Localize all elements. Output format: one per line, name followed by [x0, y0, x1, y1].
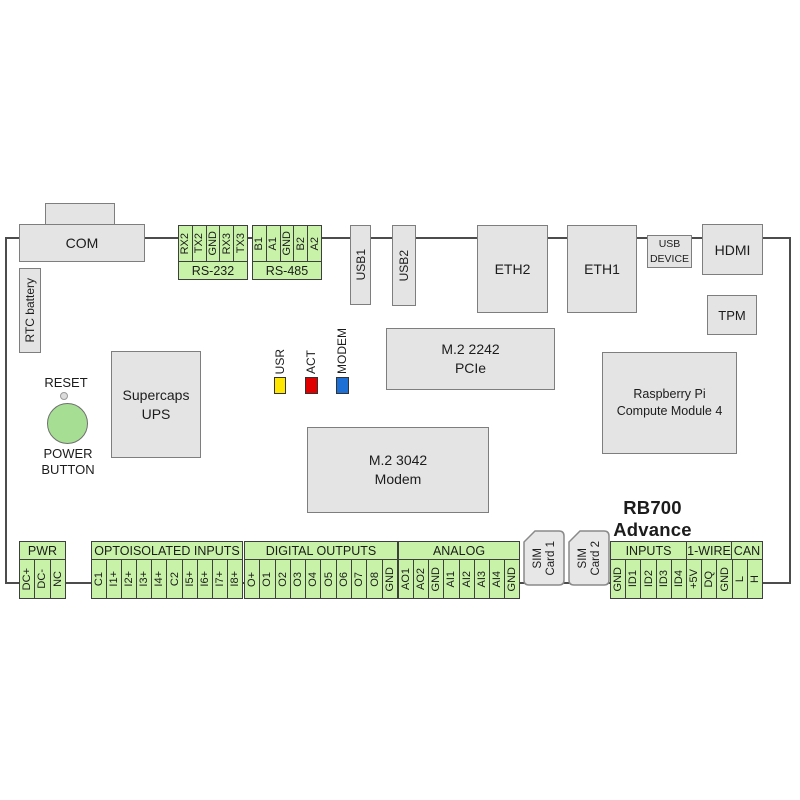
- optoisolated-inputs-pins: C1 I1+ I2+ I3+ I4+ C2 I5+ I6+ I7+ I8+: [91, 559, 243, 599]
- rs485-pins: B1 A1 GND B2 A2: [252, 225, 322, 262]
- usb2-port: USB2: [392, 225, 416, 306]
- sim-card-2: SIM Card 2: [568, 530, 610, 586]
- pin-id2: ID2: [640, 559, 656, 599]
- pin-o3: O3: [290, 559, 306, 599]
- pin-gnd: GND: [280, 225, 295, 262]
- rs485-header: RS-485: [252, 261, 322, 280]
- pin-c1: C1: [91, 559, 107, 599]
- pin-i6: I6+: [197, 559, 213, 599]
- onewire-header: 1-WIRE: [686, 541, 732, 560]
- can-header: CAN: [731, 541, 763, 560]
- pin-can-h: H: [747, 559, 763, 599]
- led-act-label: ACT: [304, 350, 318, 374]
- pin-5v: +5V: [686, 559, 702, 599]
- supercaps-ups: Supercaps UPS: [111, 351, 201, 458]
- pin-b1: B1: [252, 225, 267, 262]
- hdmi-label: HDMI: [715, 242, 751, 258]
- power-button: [47, 403, 88, 444]
- pin-ao2: AO2: [413, 559, 429, 599]
- led-modem-label: MODEM: [335, 328, 349, 374]
- digital-outputs-block: DIGITAL OUTPUTS O+ O1 O2 O3 O4 O5 O6 O7 …: [244, 541, 398, 599]
- com-connector: COM: [19, 224, 145, 262]
- m2-2242-slot: M.2 2242 PCIe: [386, 328, 555, 390]
- pin-gnd: GND: [428, 559, 444, 599]
- rs485-block: B1 A1 GND B2 A2 RS-485: [252, 225, 322, 280]
- sim-card-1-label: SIM Card 1: [523, 530, 565, 586]
- pin-tx2: TX2: [192, 225, 207, 262]
- pin-o7: O7: [351, 559, 367, 599]
- raspberry-pi-cm4: Raspberry Pi Compute Module 4: [602, 352, 737, 454]
- pin-gnd2: GND: [716, 559, 732, 599]
- usb-device-label-line1: USB: [650, 237, 689, 251]
- optoisolated-inputs-header: OPTOISOLATED INPUTS: [91, 541, 243, 560]
- pin-gnd2: GND: [504, 559, 520, 599]
- pin-c2: C2: [166, 559, 182, 599]
- io-headers: INPUTS 1-WIRE CAN: [610, 541, 763, 560]
- pin-gnd: GND: [610, 559, 626, 599]
- board-diagram: COM RTC battery RX2 TX2 GND RX3 TX3 RS-2…: [0, 0, 800, 800]
- m2-2242-label-line2: PCIe: [441, 359, 499, 378]
- pin-o6: O6: [336, 559, 352, 599]
- led-modem-indicator: [336, 377, 349, 394]
- supercaps-label-line2: UPS: [123, 405, 190, 424]
- pin-gnd: GND: [206, 225, 221, 262]
- pin-tx3: TX3: [233, 225, 248, 262]
- rs232-header: RS-232: [178, 261, 248, 280]
- pin-ai1: AI1: [443, 559, 459, 599]
- sim-card-2-label: SIM Card 2: [568, 530, 610, 586]
- led-act-indicator: [305, 377, 318, 394]
- led-modem: MODEM: [333, 324, 351, 394]
- reset-label: RESET: [36, 375, 96, 390]
- reset-button: [60, 392, 68, 400]
- led-usr-label: USR: [273, 349, 287, 374]
- io-block: INPUTS 1-WIRE CAN GND ID1 ID2 ID3 ID4 +5…: [610, 541, 763, 599]
- pin-i7: I7+: [212, 559, 228, 599]
- usb1-port: USB1: [350, 225, 371, 305]
- pin-i2: I2+: [121, 559, 137, 599]
- pwr-pins: DC+ DC- NC: [19, 559, 66, 599]
- pin-i8: I8+: [227, 559, 243, 599]
- pin-id1: ID1: [625, 559, 641, 599]
- pin-id4: ID4: [671, 559, 687, 599]
- pin-i5: I5+: [182, 559, 198, 599]
- pin-a1: A1: [266, 225, 281, 262]
- pin-ai2: AI2: [459, 559, 475, 599]
- hdmi-port: HDMI: [702, 224, 763, 275]
- cm4-label-line2: Compute Module 4: [617, 403, 723, 420]
- pin-a2: A2: [307, 225, 322, 262]
- m2-3042-label-line1: M.2 3042: [369, 451, 427, 470]
- pin-gnd: GND: [382, 559, 398, 599]
- usb2-label: USB2: [397, 250, 411, 281]
- digital-outputs-header: DIGITAL OUTPUTS: [244, 541, 398, 560]
- eth1-port: ETH1: [567, 225, 637, 313]
- eth1-label: ETH1: [584, 261, 620, 277]
- pin-dc-minus: DC-: [34, 559, 50, 599]
- m2-3042-label-line2: Modem: [369, 470, 427, 489]
- digital-outputs-pins: O+ O1 O2 O3 O4 O5 O6 O7 O8 GND: [244, 559, 398, 599]
- usb1-label: USB1: [354, 249, 368, 280]
- m2-2242-label-line1: M.2 2242: [441, 340, 499, 359]
- inputs-header: INPUTS: [610, 541, 687, 560]
- sim-card-1: SIM Card 1: [523, 530, 565, 586]
- pin-o5: O5: [320, 559, 336, 599]
- rs232-block: RX2 TX2 GND RX3 TX3 RS-232: [178, 225, 248, 280]
- rs232-pins: RX2 TX2 GND RX3 TX3: [178, 225, 248, 262]
- tpm-module: TPM: [707, 295, 757, 335]
- pin-b2: B2: [293, 225, 308, 262]
- pin-ai4: AI4: [489, 559, 505, 599]
- pin-o1: O1: [259, 559, 275, 599]
- pin-i4: I4+: [151, 559, 167, 599]
- pin-ai3: AI3: [474, 559, 490, 599]
- supercaps-label-line1: Supercaps: [123, 386, 190, 405]
- usb-device-port: USB DEVICE: [647, 235, 692, 268]
- rtc-battery: RTC battery: [19, 268, 41, 353]
- analog-block: ANALOG AO1 AO2 GND AI1 AI2 AI3 AI4 GND: [398, 541, 520, 599]
- com-label: COM: [66, 235, 99, 251]
- pin-id3: ID3: [656, 559, 672, 599]
- eth2-label: ETH2: [495, 261, 531, 277]
- pin-ao1: AO1: [398, 559, 414, 599]
- eth2-port: ETH2: [477, 225, 548, 313]
- optoisolated-inputs-block: OPTOISOLATED INPUTS C1 I1+ I2+ I3+ I4+ C…: [91, 541, 243, 599]
- pin-dc-plus: DC+: [19, 559, 35, 599]
- m2-3042-slot: M.2 3042 Modem: [307, 427, 489, 513]
- usb-device-label-line2: DEVICE: [650, 252, 689, 266]
- pin-rx2: RX2: [178, 225, 193, 262]
- pin-i1: I1+: [106, 559, 122, 599]
- pin-o-plus: O+: [244, 559, 260, 599]
- led-usr-indicator: [274, 377, 286, 394]
- pin-o8: O8: [366, 559, 382, 599]
- com-connector-tab: [45, 203, 115, 226]
- pin-nc: NC: [50, 559, 66, 599]
- pin-i3: I3+: [136, 559, 152, 599]
- pin-dq: DQ: [701, 559, 717, 599]
- led-usr: USR: [271, 324, 289, 394]
- pin-rx3: RX3: [219, 225, 234, 262]
- led-act: ACT: [302, 324, 320, 394]
- pin-o2: O2: [275, 559, 291, 599]
- io-pins: GND ID1 ID2 ID3 ID4 +5V DQ GND L H: [610, 559, 763, 599]
- pwr-block: PWR DC+ DC- NC: [19, 541, 66, 599]
- tpm-label: TPM: [718, 308, 745, 323]
- pin-o4: O4: [305, 559, 321, 599]
- pin-can-l: L: [732, 559, 748, 599]
- cm4-label-line1: Raspberry Pi: [617, 386, 723, 403]
- rtc-battery-label: RTC battery: [23, 278, 37, 342]
- analog-pins: AO1 AO2 GND AI1 AI2 AI3 AI4 GND: [398, 559, 520, 599]
- power-button-label: POWER BUTTON: [30, 446, 106, 477]
- pwr-header: PWR: [19, 541, 66, 560]
- analog-header: ANALOG: [398, 541, 520, 560]
